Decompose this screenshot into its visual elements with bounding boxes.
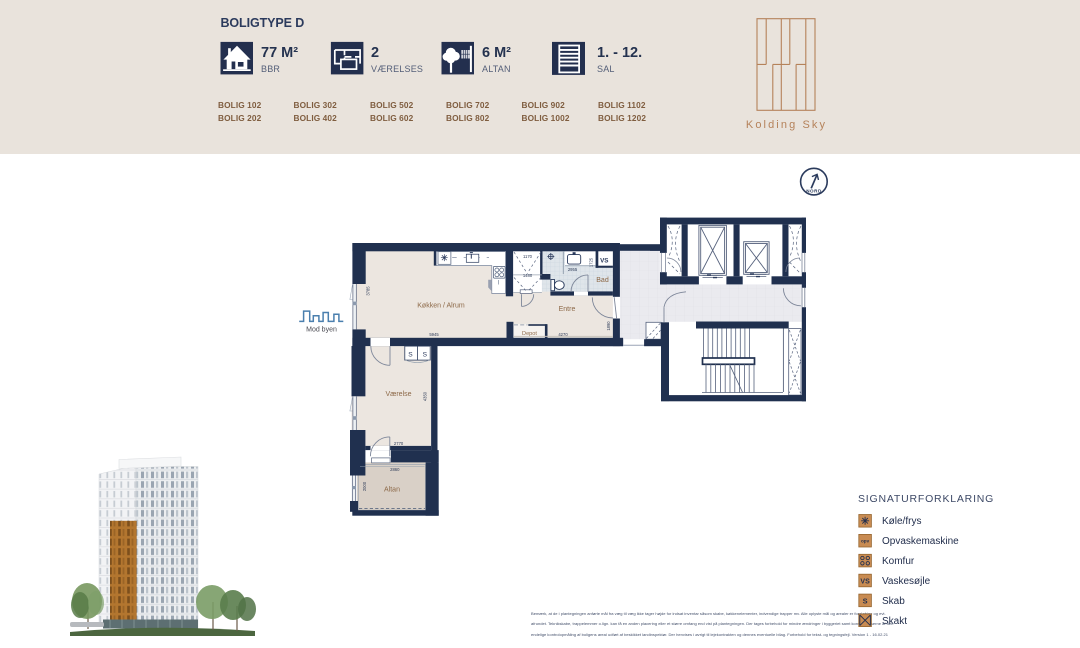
svg-text:VS: VS [600, 257, 608, 264]
svg-text:Altan: Altan [384, 486, 400, 493]
svg-text:1170: 1170 [523, 254, 533, 259]
svg-text:1480: 1480 [523, 273, 533, 278]
svg-text:S: S [423, 352, 428, 359]
svg-text:2000: 2000 [362, 481, 367, 491]
svg-text:1890: 1890 [606, 321, 611, 331]
svg-text:Mod byen: Mod byen [306, 327, 337, 334]
svg-text:Entre: Entre [559, 306, 576, 313]
svg-text:Bad: Bad [596, 277, 609, 284]
svg-text:S: S [863, 596, 868, 605]
svg-text:2955: 2955 [568, 267, 578, 272]
svg-text:3785: 3785 [365, 286, 370, 296]
svg-text:Depot: Depot [522, 331, 537, 337]
svg-text:Værelse: Værelse [385, 391, 411, 398]
svg-text:4350: 4350 [422, 391, 427, 401]
svg-text:1725: 1725 [588, 257, 593, 267]
svg-text:VS: VS [860, 578, 870, 585]
svg-text:2860: 2860 [390, 467, 400, 472]
svg-text:Kolding Sky: Kolding Sky [746, 119, 827, 131]
svg-text:opv: opv [861, 539, 870, 544]
svg-text:4270: 4270 [558, 332, 568, 337]
svg-text:NORD: NORD [806, 188, 822, 193]
svg-text:5945: 5945 [429, 332, 439, 337]
svg-text:S: S [408, 352, 413, 359]
svg-text:Køkken / Alrum: Køkken / Alrum [417, 303, 465, 310]
svg-text:2770: 2770 [394, 441, 404, 446]
